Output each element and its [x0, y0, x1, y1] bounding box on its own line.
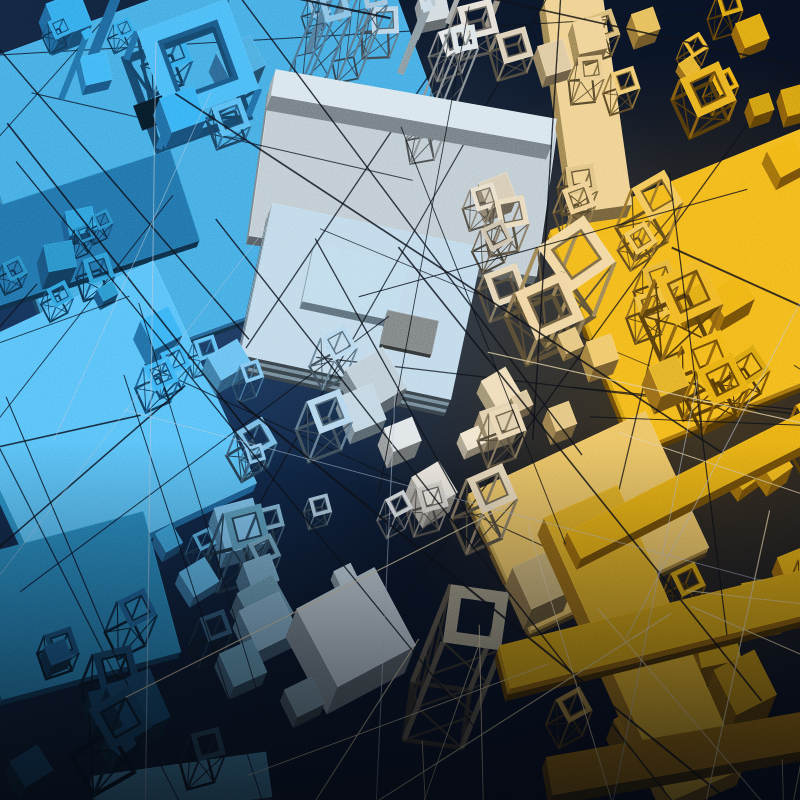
scene-svg: [0, 0, 800, 800]
render-canvas: [0, 0, 800, 800]
procedural-city-render: [0, 0, 800, 800]
vignette-bottom: [0, 0, 800, 800]
